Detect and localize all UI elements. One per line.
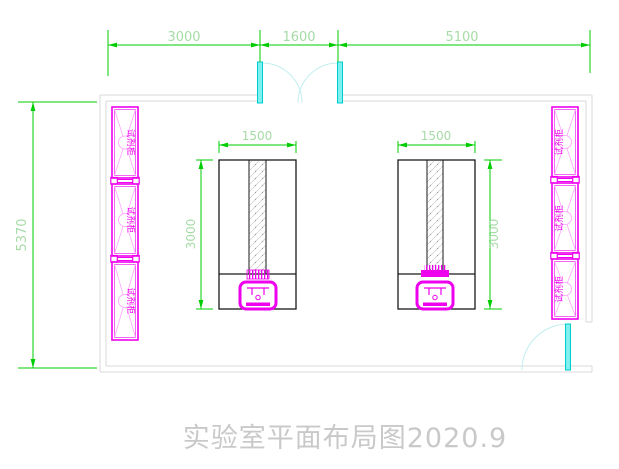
drawing-title: 实验室平面布局图2020.9	[183, 423, 507, 454]
bench-right	[398, 160, 475, 309]
cabinet-right-1: 试剂柜	[552, 107, 578, 177]
bench-center-strip	[249, 160, 266, 274]
cad-drawing-canvas: 3000 1600 5100 5370 试剂柜	[0, 0, 619, 469]
cabinet-left-1: 试剂柜	[112, 107, 138, 178]
cabinet-left-3: 试剂柜	[112, 262, 138, 340]
door-swing-arc	[522, 324, 568, 370]
sink-grate	[424, 265, 446, 270]
door-swing-arc-right	[298, 63, 338, 103]
cabinet-column-left: 试剂柜 试剂柜 试剂柜	[111, 107, 139, 340]
dim-label-top-right: 5100	[445, 30, 478, 45]
cabinet-label: 试剂柜	[125, 129, 136, 156]
cabinet-label: 试剂柜	[554, 275, 565, 302]
floor-plan-svg: 3000 1600 5100 5370 试剂柜	[0, 0, 619, 469]
bench-left	[219, 160, 296, 309]
dim-label-top-middle: 1600	[282, 30, 315, 45]
cabinet-label: 试剂柜	[554, 204, 565, 231]
cabinet-label: 试剂柜	[125, 287, 136, 314]
dim-label-top-left: 3000	[167, 30, 200, 45]
cabinet-label: 试剂柜	[125, 206, 136, 233]
door-swing-arc-left	[263, 63, 303, 103]
dim-label-bench-right-depth: 3000	[487, 219, 501, 250]
right-side-door	[522, 324, 571, 370]
cabinet-right-3: 试剂柜	[552, 259, 578, 319]
dimension-bench-left-depth	[196, 160, 213, 309]
door-leaf-right	[338, 62, 343, 103]
cabinet-right-2: 试剂柜	[552, 183, 578, 253]
dim-label-bench-right-width: 1500	[421, 129, 452, 143]
bench-center-strip	[427, 160, 443, 274]
top-double-door	[258, 62, 343, 103]
room-walls	[100, 95, 592, 372]
sink-bar	[421, 270, 449, 277]
door-leaf-left	[258, 62, 263, 103]
wall-outer-line	[100, 95, 592, 372]
dim-label-left-height: 5370	[15, 218, 30, 251]
cabinet-column-right: 试剂柜 试剂柜 试剂柜	[551, 107, 579, 319]
dim-label-bench-left-depth: 3000	[184, 219, 198, 250]
cabinet-left-2: 试剂柜	[112, 184, 138, 256]
door-leaf	[566, 324, 571, 370]
sink-grate	[247, 270, 269, 279]
cabinet-label: 试剂柜	[554, 128, 565, 155]
dim-label-bench-left-width: 1500	[242, 129, 273, 143]
wall-inner-line	[106, 101, 586, 366]
